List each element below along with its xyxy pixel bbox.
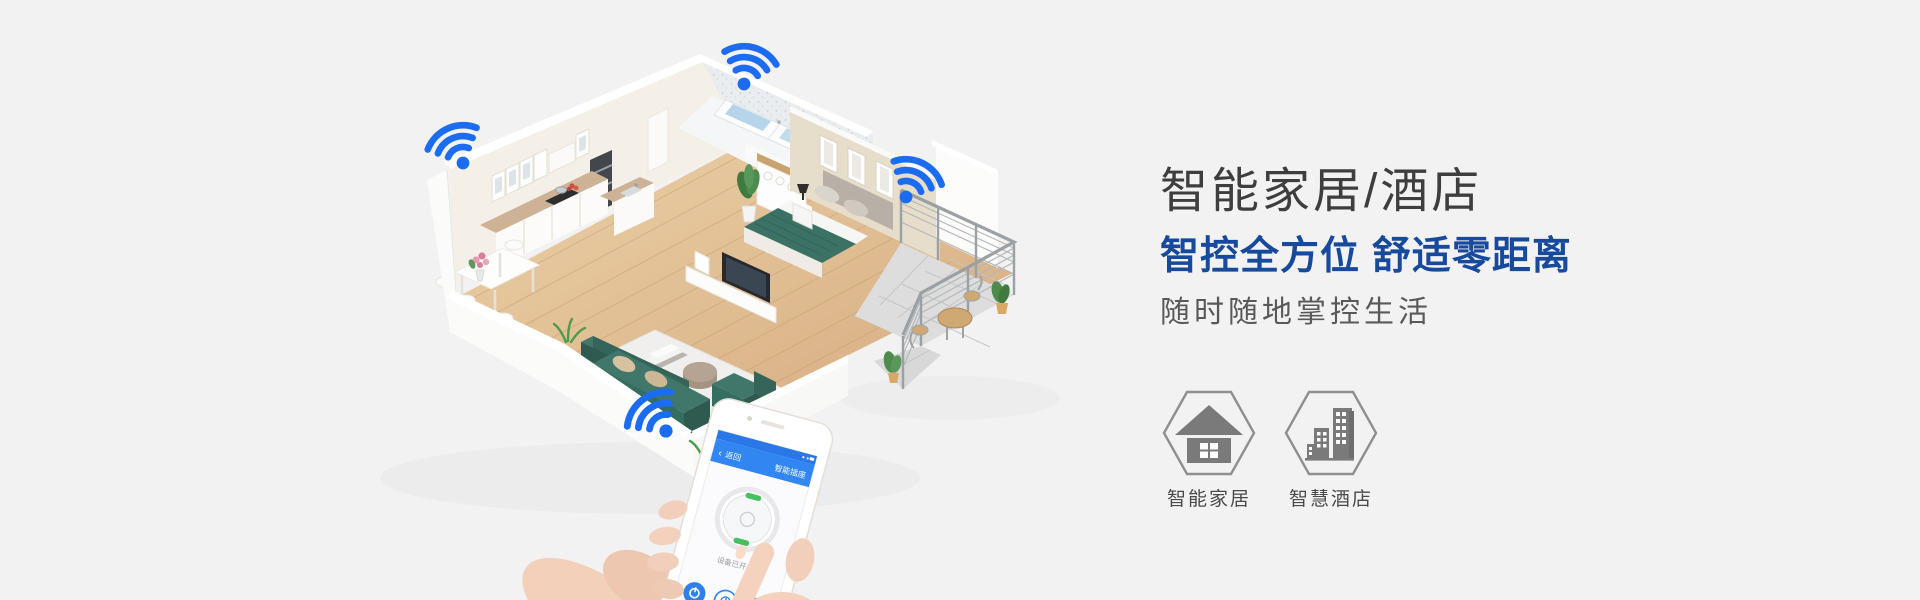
- feature-smart-hotel[interactable]: 智慧酒店: [1282, 388, 1380, 511]
- home-icon: [1161, 388, 1257, 478]
- copy-block: 智能家居/酒店 智控全方位 舒适零距离 随时随地掌控生活: [1160, 166, 1800, 330]
- balcony-table: [938, 308, 972, 340]
- subheadline: 智控全方位 舒适零距离: [1160, 235, 1800, 280]
- feature-label: 智慧酒店: [1289, 484, 1373, 511]
- feature-smart-home[interactable]: 智能家居: [1160, 388, 1258, 511]
- hero-banner: ‹ 返回 智能插座 设备已开启: [0, 0, 1920, 600]
- buildings-icon: [1283, 388, 1379, 478]
- headline: 智能家居/酒店: [1160, 166, 1800, 219]
- tagline: 随时随地掌控生活: [1160, 296, 1800, 331]
- feature-list: 智能家居: [1160, 388, 1380, 511]
- feature-label: 智能家居: [1167, 484, 1251, 511]
- apartment-illustration: ‹ 返回 智能插座 设备已开启: [0, 0, 1100, 600]
